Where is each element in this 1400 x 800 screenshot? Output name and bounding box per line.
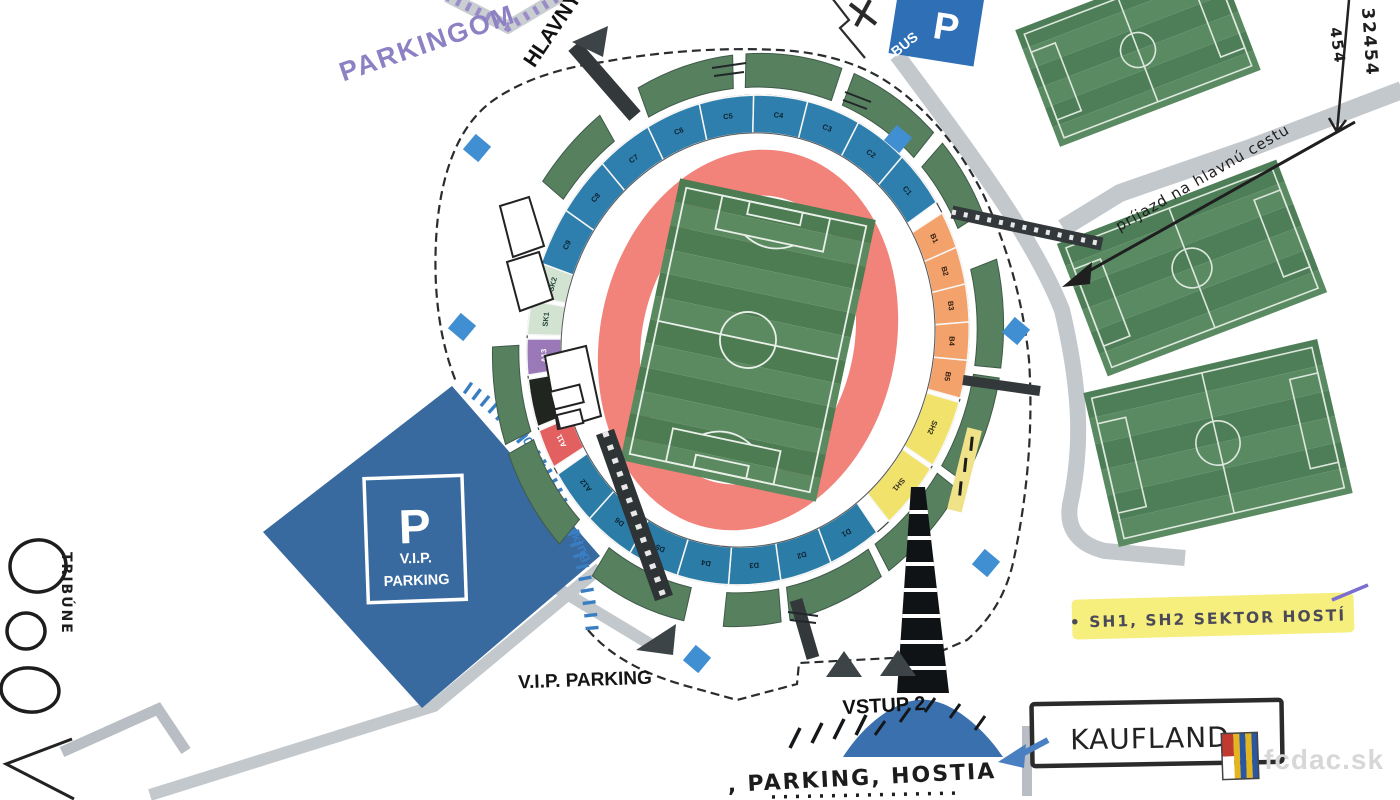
skybox-parking-tick (464, 383, 472, 394)
ring-section-label: SK1 (541, 312, 552, 328)
building-block (500, 197, 544, 257)
gate-marker (463, 134, 491, 162)
left-note-text: TRIBÚNE (58, 552, 76, 635)
vip-sign-line2: PARKING (383, 572, 449, 590)
outer-stand-block (720, 579, 788, 638)
walkway-main-entrance (574, 46, 635, 116)
watermark: fcdac.sk (1221, 732, 1384, 779)
fcdac-crest (1221, 732, 1259, 779)
fence-north-spur (832, 0, 865, 58)
road-chevron (62, 709, 186, 752)
skybox-parking-tick (581, 589, 594, 591)
gate-marker (683, 645, 711, 673)
ring-section-label: B4 (947, 336, 956, 347)
skybox-parking-tick (481, 396, 489, 406)
vstup2-label: VSTUP 2 (842, 693, 926, 719)
crest-white (1222, 756, 1235, 779)
entrance-triangle-vstup2-a (826, 651, 862, 677)
tree-mark (850, 0, 876, 26)
gate-marker (972, 549, 1000, 577)
parking-hostia-text: , PARKING, HOSTIA (727, 759, 997, 798)
skybox-parking-tick (584, 614, 597, 615)
gate-marker (448, 313, 476, 341)
left-edge-scrawl: TRIBÚNE (0, 536, 76, 799)
hand-oval (0, 665, 61, 715)
ring-section-label: D3 (749, 561, 759, 571)
crest-red (1221, 733, 1234, 756)
vip-parking-label: V.I.P. PARKING (518, 668, 652, 694)
vip-sign-line1: V.I.P. (399, 550, 432, 567)
scrawl-text-2: 454 (1326, 26, 1349, 65)
training-pitches (1015, 0, 1352, 547)
kaufland-text: KAUFLAND (1070, 721, 1230, 757)
skybox-parking-tick (473, 389, 481, 399)
scrawl-text-1: 32454 (1357, 7, 1382, 77)
skybox-parking-tick (586, 627, 599, 628)
sector-note: • SH1, SH2 SEKTOR HOSTÍ (1070, 585, 1368, 640)
watermark-text: fcdac.sk (1264, 744, 1384, 775)
ring-section-label: B3 (946, 300, 956, 311)
parking-hostia-note: , PARKING, HOSTIA (727, 759, 997, 798)
ring-section-label: C5 (723, 111, 734, 121)
hand-oval (7, 613, 45, 649)
vip-sign-p: P (398, 500, 432, 554)
parkingom-label: PARKINGOM (335, 0, 519, 87)
ring-section-label: B5 (942, 371, 953, 382)
stadium-map-svg: P V.I.P. PARKING 40x Sky Box Parking C9C… (0, 0, 1400, 800)
venue-map-canvas: P V.I.P. PARKING 40x Sky Box Parking C9C… (0, 0, 1400, 800)
skybox-parking-tick (583, 602, 596, 604)
training-pitch (1015, 0, 1261, 147)
